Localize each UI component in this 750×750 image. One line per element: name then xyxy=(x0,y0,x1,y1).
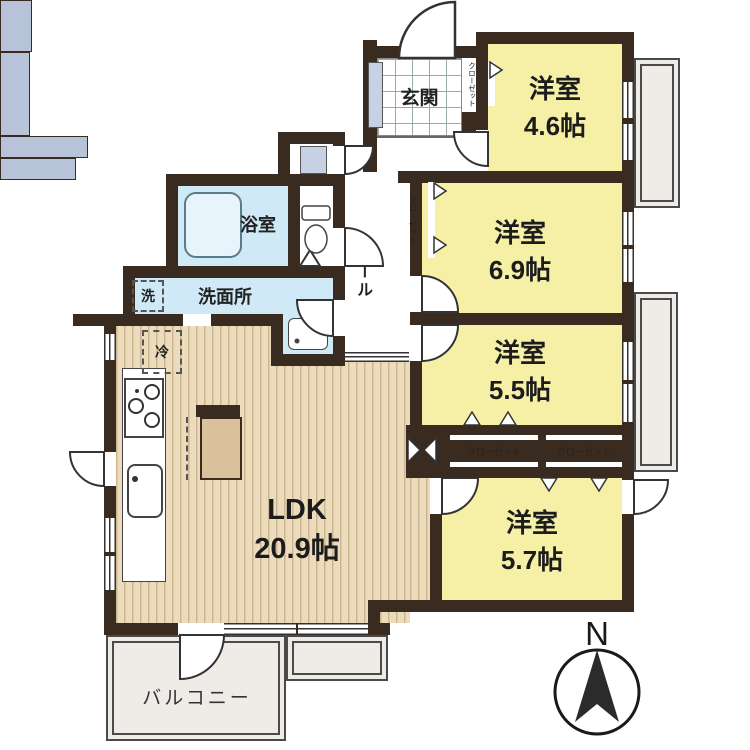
balcony-top-right xyxy=(634,58,680,208)
ldk-name: LDK xyxy=(267,491,327,529)
refrigerator-label: 冷 xyxy=(155,342,169,362)
room-name: 洋室 xyxy=(529,71,581,107)
window xyxy=(622,124,634,160)
closet-row-right-label: クローゼット xyxy=(546,440,622,462)
kitchen-island-overhang xyxy=(186,417,200,480)
window xyxy=(622,342,634,380)
room-name: 洋室 xyxy=(494,215,546,251)
closet-entrance xyxy=(0,0,32,52)
ldk-floor xyxy=(410,466,430,600)
stove xyxy=(124,378,164,438)
entrance-label: 玄関 xyxy=(377,86,462,106)
window xyxy=(104,556,116,590)
window xyxy=(104,518,116,552)
washer-label: 洗 xyxy=(141,286,155,306)
room-name: 洋室 xyxy=(506,505,558,541)
room-6-9-label: 洋室 6.9帖 xyxy=(430,210,610,294)
hall-cabinet xyxy=(300,146,327,174)
window xyxy=(622,384,634,422)
room-size: 4.6帖 xyxy=(524,107,586,145)
balcony-inner-rail xyxy=(640,64,674,202)
closet-room-6-9 xyxy=(0,52,30,136)
room-5-5-label: 洋室 5.5帖 xyxy=(430,330,610,414)
ldk-label: LDK 20.9帖 xyxy=(190,488,404,572)
compass-north-label: N xyxy=(577,616,617,652)
washroom-label: 洗面所 xyxy=(165,286,285,306)
closet-entrance-label: クローゼット xyxy=(458,60,486,108)
balcony-inner-rail xyxy=(292,641,382,675)
bath-label: 浴室 xyxy=(210,214,306,234)
floorplan: クローゼット クローゼット クローゼット クローゼット 冷 洗 洋室 4.6帖 … xyxy=(0,0,750,750)
refrigerator-space: 冷 xyxy=(142,330,182,374)
closet-row-left xyxy=(0,136,88,158)
room-size: 5.7帖 xyxy=(501,541,563,579)
balcony-bottom-ext xyxy=(286,635,388,681)
entrance-step-line xyxy=(377,136,462,138)
ldk-size: 20.9帖 xyxy=(254,529,339,569)
sliding-window xyxy=(224,623,296,635)
balcony-inner-rail xyxy=(640,298,672,466)
sliding-window xyxy=(298,623,368,635)
balcony-label: バルコニー xyxy=(116,685,278,707)
window xyxy=(622,212,634,245)
washer-space: 洗 xyxy=(132,280,164,312)
closet-row-left-label: クローゼット xyxy=(450,440,538,462)
kitchen-island-counter xyxy=(200,417,242,480)
window xyxy=(622,82,634,118)
room-size: 5.5帖 xyxy=(489,371,551,409)
window xyxy=(622,249,634,282)
kitchen-sink xyxy=(127,464,163,518)
closet-room-6-9-label: クローゼット xyxy=(400,182,426,258)
hall-label: ホール xyxy=(350,210,374,334)
sliding-door-hall-ldk xyxy=(345,352,409,362)
room-4-6-label: 洋室 4.6帖 xyxy=(488,66,622,150)
vanity-sink xyxy=(288,318,328,350)
closet-row-right xyxy=(0,158,76,180)
room-5-7-label: 洋室 5.7帖 xyxy=(442,500,622,584)
room-name: 洋室 xyxy=(494,335,546,371)
balcony-mid-right xyxy=(634,292,678,472)
room-size: 6.9帖 xyxy=(489,251,551,289)
window xyxy=(104,334,116,360)
